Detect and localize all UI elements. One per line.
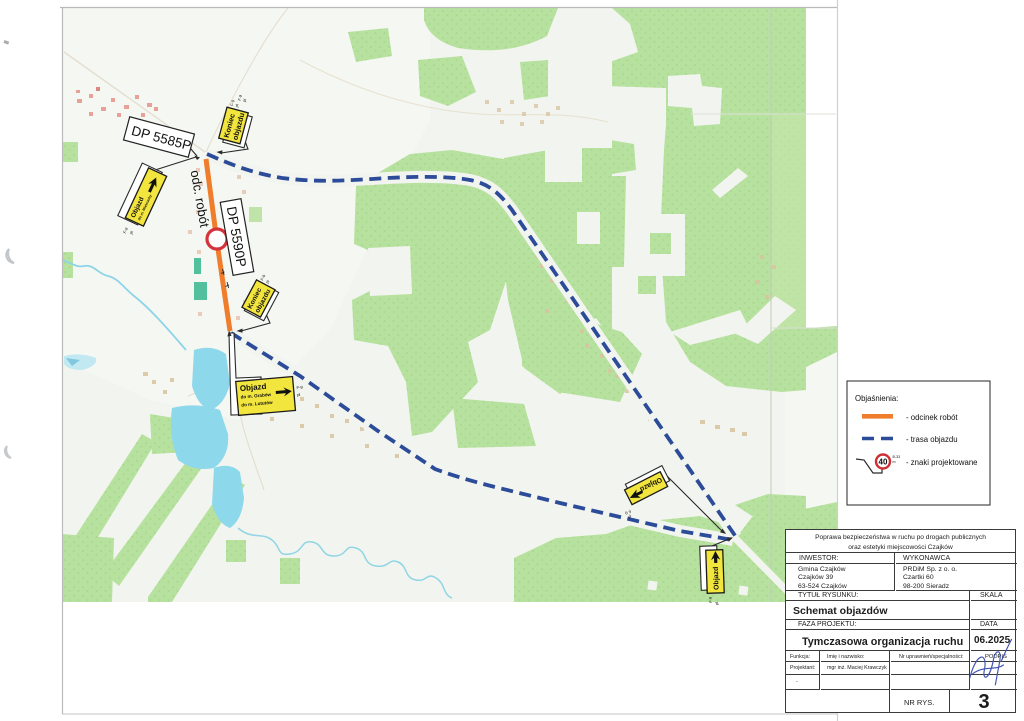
svg-text:40: 40 [879, 458, 888, 467]
svg-text:Objazd: Objazd [713, 566, 721, 590]
svg-text:Objaśnienia:: Objaśnienia: [855, 394, 898, 403]
svg-text:m: m [893, 460, 896, 464]
svg-text:B-33: B-33 [893, 455, 901, 459]
svg-text:- znaki projektowane: - znaki projektowane [906, 458, 978, 467]
svg-text:pl: pl [714, 602, 719, 605]
svg-text:- odcinek robót: - odcinek robót [906, 413, 958, 422]
svg-text:F-9: F-9 [296, 385, 303, 391]
svg-text:- trasa objazdu: - trasa objazdu [906, 435, 958, 444]
svg-text:F-9: F-9 [708, 596, 713, 603]
svg-text:pl: pl [297, 392, 301, 397]
